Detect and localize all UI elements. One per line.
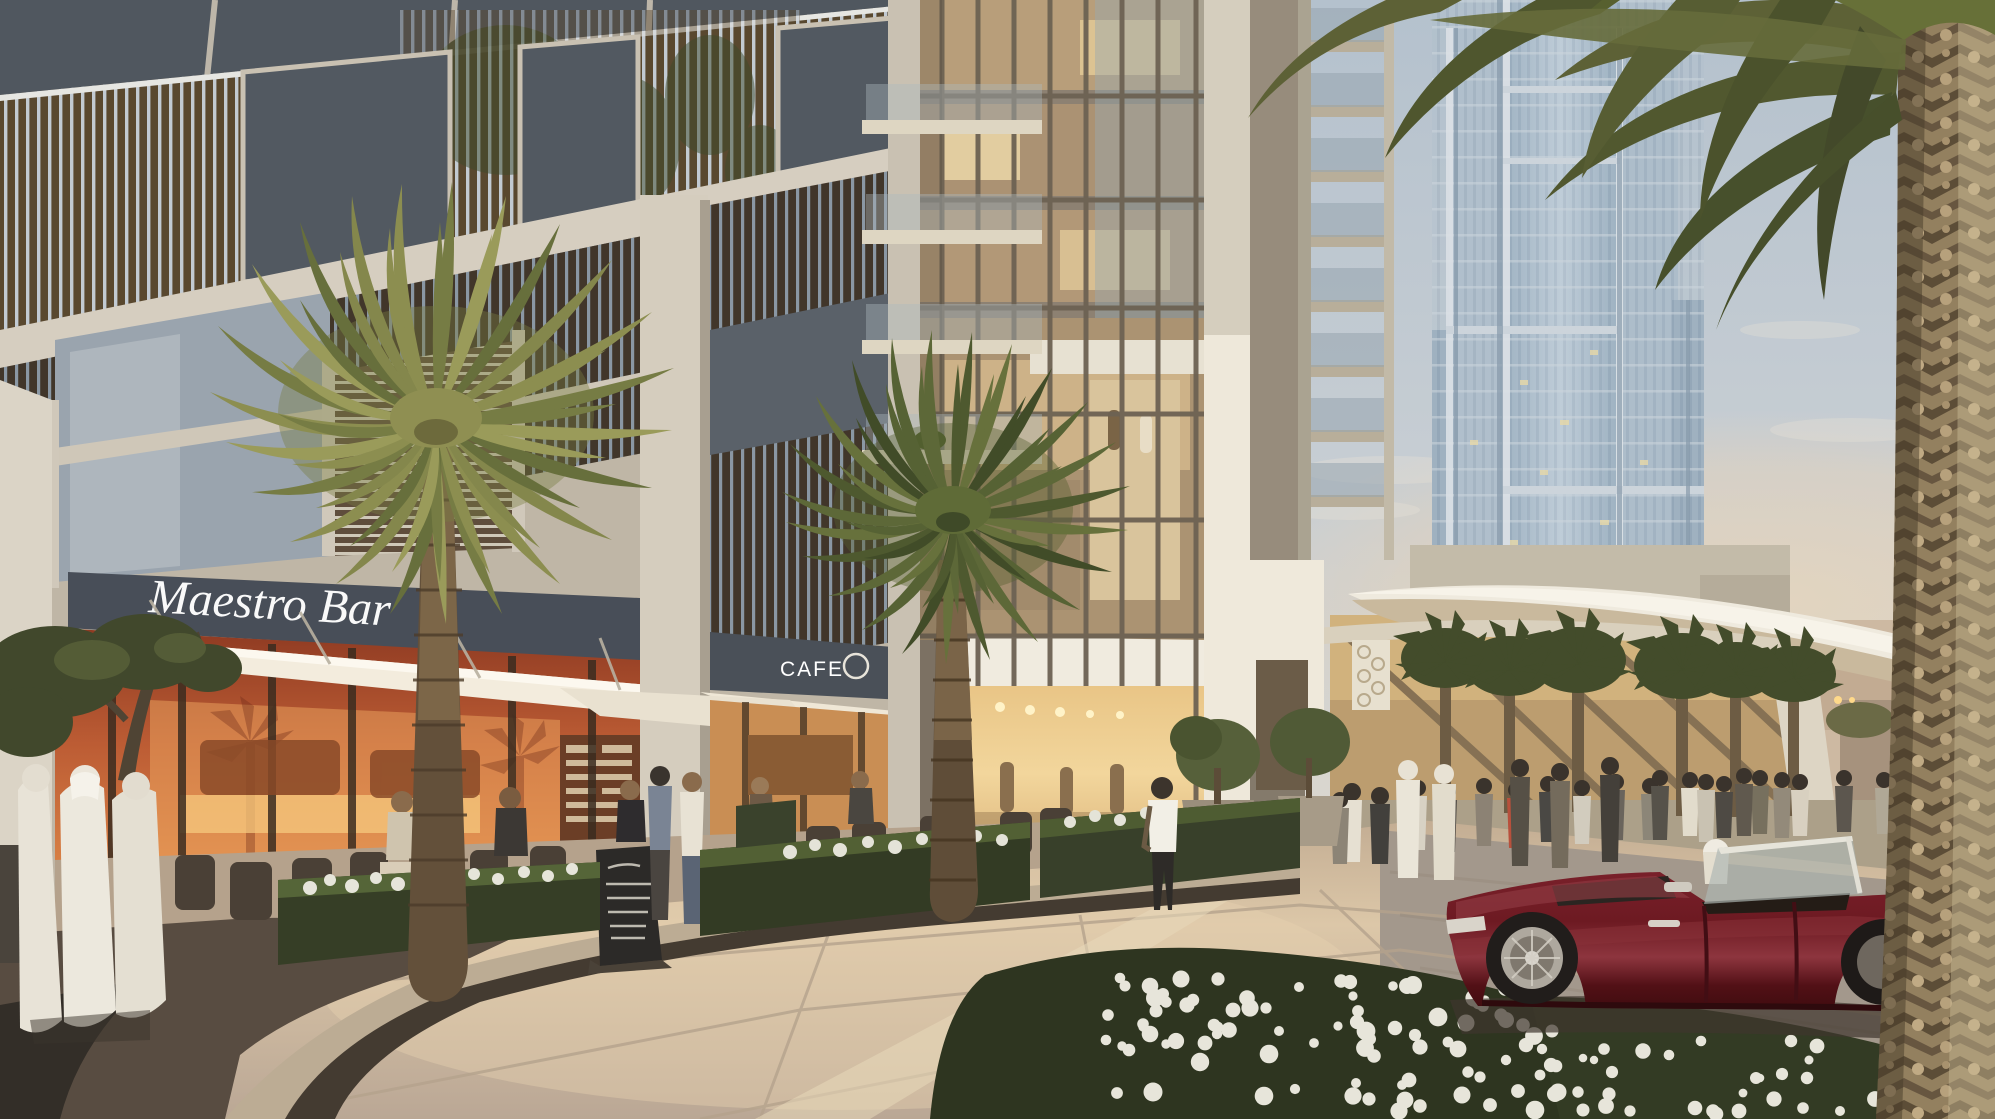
svg-text:CAFE: CAFE: [780, 658, 844, 681]
